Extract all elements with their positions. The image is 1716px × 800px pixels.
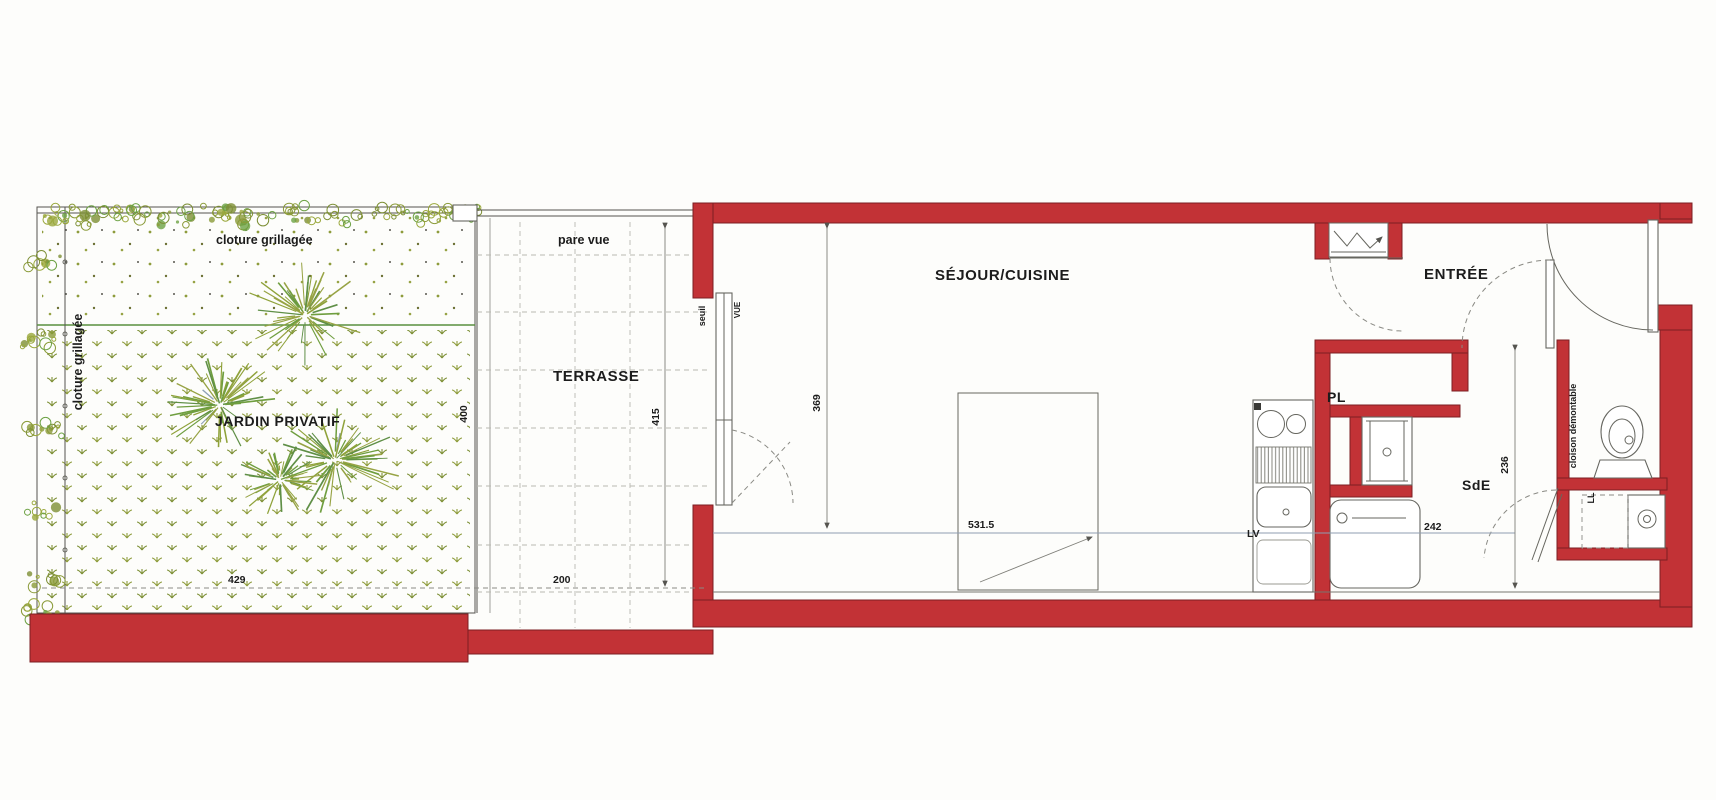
wall-wc-bottom (1557, 478, 1667, 490)
garden-label: JARDIN PRIVATIF (215, 413, 340, 429)
wall-bottom (693, 600, 1692, 627)
washer-label: LL (1586, 492, 1596, 503)
pare-vue-label: pare vue (558, 233, 609, 247)
toilet (1594, 406, 1652, 478)
closet-label: PL (1327, 389, 1346, 405)
floor-plan-page: cloture grillagée cloture grillagée JARD… (0, 0, 1716, 800)
pare-vue-screen (453, 205, 693, 221)
doors-windows (716, 220, 1658, 562)
dishwasher-label: LV (1247, 528, 1260, 540)
wall-right (1660, 307, 1692, 607)
dim-living-width: 531.5 (968, 519, 994, 531)
shower-room-label: SdE (1462, 477, 1491, 493)
fence-left-label: cloture grillagée (71, 314, 85, 411)
dim-sde-depth: 236 (1499, 456, 1511, 474)
shower (1362, 417, 1412, 485)
wall-shower-top (1330, 405, 1460, 417)
shower-room-door (1484, 488, 1562, 562)
wall-terrace-bottom (468, 630, 713, 654)
kitchen-sink (1257, 487, 1311, 527)
dim-garden-width: 429 (228, 574, 246, 586)
washbasin (1330, 500, 1420, 588)
wall-niche-right-stub (1388, 223, 1402, 259)
removable-partition-label: cloison démontable (1568, 384, 1578, 469)
wall-entry-divider (1315, 340, 1468, 353)
niche-door (1330, 258, 1403, 331)
drainer (1256, 447, 1311, 483)
terrace-label: TERRASSE (553, 368, 639, 385)
furniture-square (958, 393, 1098, 590)
kitchen-corner-mark (1254, 403, 1261, 410)
dim-living-depth: 369 (811, 394, 823, 412)
terrace-tile-grid (477, 222, 710, 628)
kitchen-counter (1253, 400, 1313, 592)
terrace-area (453, 205, 710, 628)
entry-label: ENTRÉE (1424, 266, 1488, 283)
utility-niche (1329, 223, 1388, 257)
threshold-label: seuil (697, 306, 707, 327)
dim-terrace-depth: 415 (650, 408, 662, 426)
dim-garden-depth: 400 (458, 405, 470, 423)
wall-shower-bottom (1330, 485, 1412, 497)
wall-top (693, 203, 1692, 223)
floor-plan-drawing: cloture grillagée cloture grillagée JARD… (0, 0, 1716, 800)
fence-top-label: cloture grillagée (216, 233, 313, 247)
front-door (1547, 220, 1658, 332)
wall-laundry-bottom (1557, 548, 1667, 560)
wall-closet-jamb (1452, 353, 1468, 391)
bay-window (716, 293, 793, 505)
living-label: SÉJOUR/CUISINE (935, 267, 1070, 284)
wall-right-top (1660, 203, 1692, 219)
dim-terrace-width: 200 (553, 574, 571, 586)
wall-niche-left-stub (1315, 223, 1329, 259)
view-label: VUE (733, 301, 742, 318)
wall-left-upper (693, 203, 713, 298)
garden-specks (42, 214, 470, 322)
garden-bottom-strip (30, 614, 468, 662)
dim-sde-width: 242 (1424, 521, 1442, 533)
